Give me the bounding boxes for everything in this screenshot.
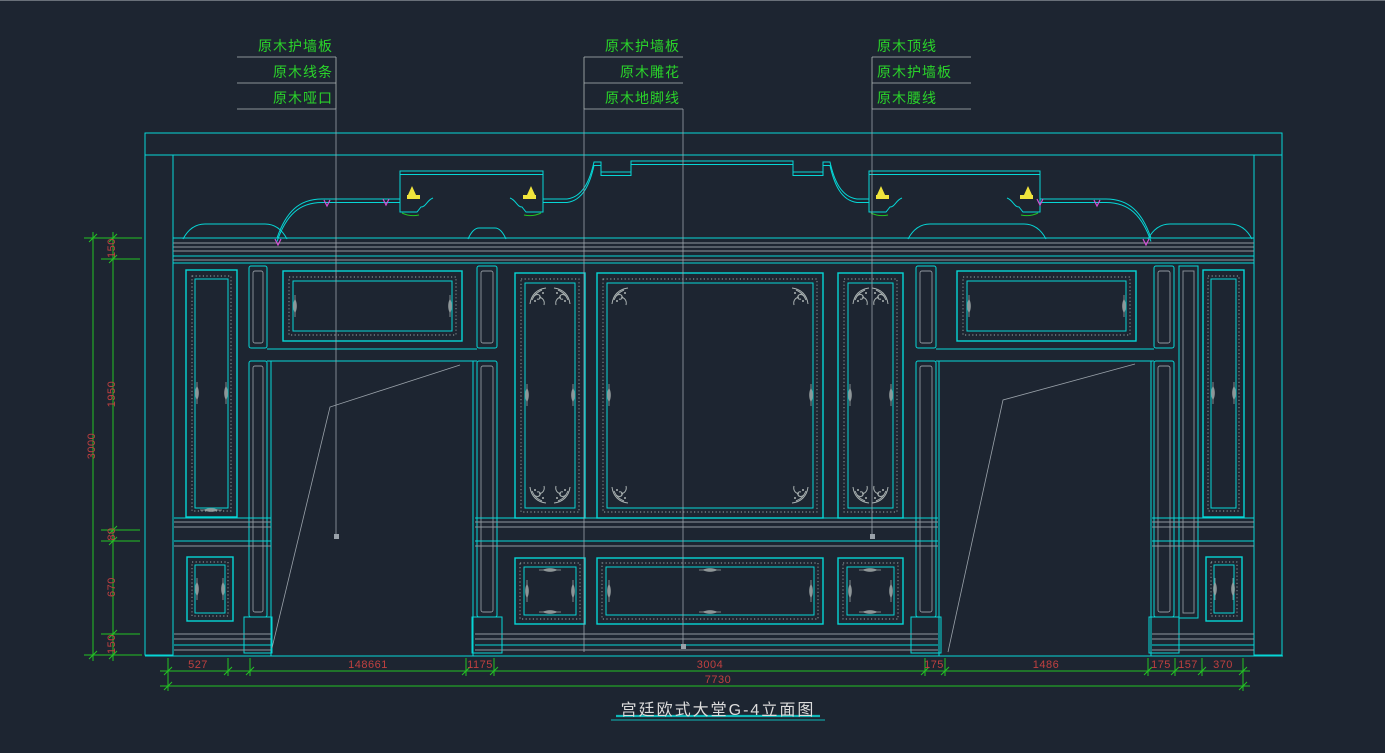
dim-bottom-overall-7730: 7730 <box>705 674 731 686</box>
wall-hatch-sections <box>145 133 1283 656</box>
dim-bottom-148661: 148661 <box>348 659 388 671</box>
corbel-lamp-ornament <box>510 186 543 216</box>
dim-bottom-3004: 3004 <box>697 659 723 671</box>
dim-left-670: 670 <box>106 555 118 619</box>
door-openings <box>267 349 1154 656</box>
callout-left-1: 原木护墙板 <box>193 38 333 54</box>
callout-middle-1: 原木护墙板 <box>540 38 680 54</box>
dim-bottom-370: 370 <box>1213 659 1233 671</box>
crown-molding-profile <box>275 161 1151 245</box>
leader-grip-dots <box>334 534 875 649</box>
callout-left-3: 原木哑口 <box>193 90 333 106</box>
entablature-band <box>173 224 1254 263</box>
corbel-lamp-ornament <box>1007 186 1040 216</box>
callout-middle-3: 原木地脚线 <box>540 90 680 106</box>
dimension-lines <box>84 232 1250 691</box>
door-swing-line <box>272 365 460 648</box>
dim-left-150a: 150 <box>106 216 118 280</box>
dim-bottom-1486: 1486 <box>1033 659 1059 671</box>
center-wall-panels <box>515 273 903 518</box>
corbel-lamp-ornament <box>400 186 433 216</box>
dim-bottom-1175a: 1175 <box>467 659 493 671</box>
pilasters <box>244 266 1198 653</box>
callout-left-2: 原木线条 <box>193 64 333 80</box>
callout-middle-2: 原木雕花 <box>540 64 680 80</box>
cad-model-space[interactable]: 原木护墙板 原木线条 原木哑口 原木护墙板 原木雕花 原木地脚线 原木顶线 原木… <box>0 0 1385 753</box>
dim-left-150b: 150 <box>106 612 118 676</box>
callout-right-1: 原木顶线 <box>877 38 937 54</box>
corbel-lamp-ornament <box>869 186 902 216</box>
dim-left-1950: 1950 <box>106 362 118 426</box>
elevation-drawing-svg <box>0 0 1385 753</box>
dim-bottom-175a: 175 <box>924 659 944 671</box>
baseboard <box>174 634 1254 650</box>
side-wall-panels <box>186 270 1244 621</box>
callout-rules-and-leaders <box>237 57 971 652</box>
dim-left-overall-3000: 3000 <box>86 414 98 478</box>
transom-panels <box>283 271 1136 341</box>
callout-right-3: 原木腰线 <box>877 90 937 106</box>
door-swing-line <box>948 364 1135 652</box>
dim-bottom-527: 527 <box>188 659 208 671</box>
dim-bottom-157: 157 <box>1178 659 1198 671</box>
wainscot-panels <box>515 558 903 624</box>
drawing-title: 宫廷欧式大堂G-4立面图 <box>621 696 816 720</box>
callout-right-2: 原木护墙板 <box>877 64 952 80</box>
dim-bottom-175b: 175 <box>1151 659 1171 671</box>
